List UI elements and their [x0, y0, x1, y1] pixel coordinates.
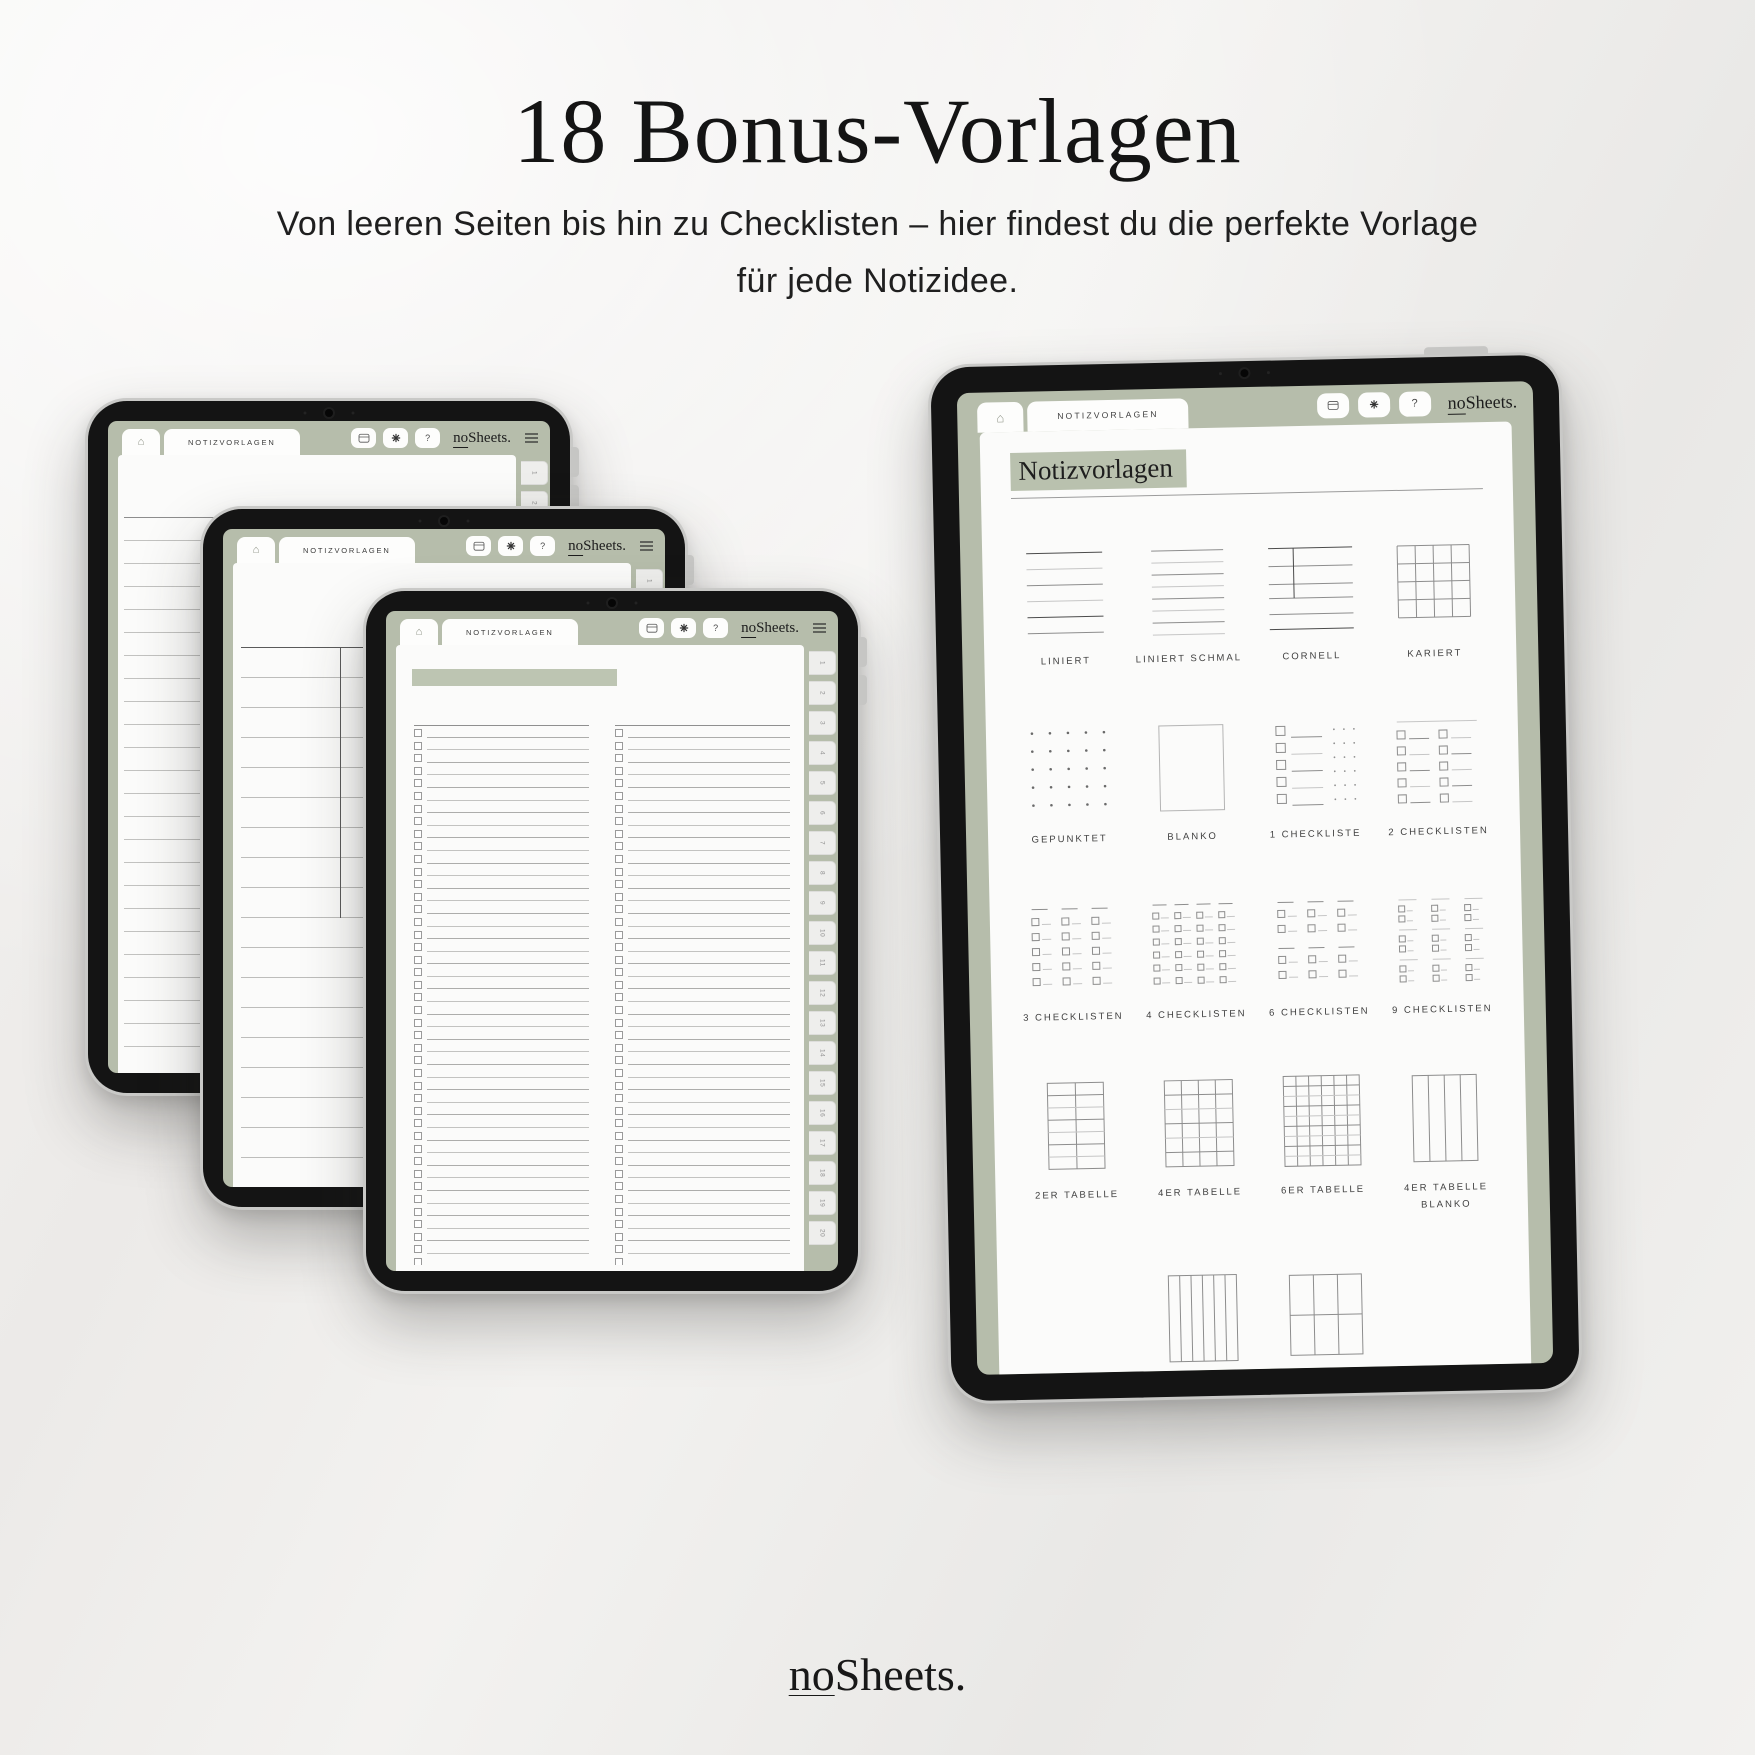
home-icon: ⌂ [996, 411, 1004, 424]
write-line [628, 787, 790, 788]
help-button[interactable]: ? [415, 428, 440, 448]
checkbox-icon [414, 905, 422, 913]
checkbox-icon [414, 1132, 422, 1140]
calendar-icon [473, 541, 485, 551]
checklist-row [414, 1116, 589, 1129]
checkbox-icon [615, 1233, 623, 1241]
help-icon: ? [425, 433, 430, 443]
checkbox-icon [414, 931, 422, 939]
tablet-toolbar: ?noSheets. [1316, 381, 1533, 426]
page-tab-number: 1 [531, 471, 538, 475]
checkbox-icon [414, 1220, 422, 1228]
checklist-row [414, 1129, 589, 1142]
write-line [628, 900, 790, 901]
checklist-row [615, 902, 790, 915]
checklist-row [414, 827, 589, 840]
page-tab[interactable]: 20 [809, 1221, 836, 1245]
tablet-toolbar: ?noSheets. [639, 611, 838, 645]
checklist-row [615, 1016, 790, 1029]
checklist-row [615, 1205, 790, 1218]
write-line [427, 1165, 589, 1166]
checkbox-icon [615, 1044, 623, 1052]
checkbox-icon [615, 767, 623, 775]
page-tab-number: 9 [819, 901, 826, 905]
checklist-row [414, 1179, 589, 1192]
hamburger-icon[interactable] [640, 541, 653, 551]
checklist-row [615, 739, 790, 752]
checkbox-icon [414, 993, 422, 1001]
checkbox-icon [414, 805, 422, 813]
checklist-row [615, 1104, 790, 1117]
checkbox-icon [414, 1119, 422, 1127]
page-tab-number: 2 [531, 501, 538, 505]
checklist-row [414, 1028, 589, 1041]
page-tab[interactable]: 13 [809, 1011, 836, 1035]
write-line [427, 1114, 589, 1115]
checkbox-icon [615, 779, 623, 787]
cornell-thumbnail [1259, 538, 1361, 637]
checkbox-icon [615, 830, 623, 838]
tab-notizvorlagen[interactable]: NOTIZVORLAGEN [164, 429, 300, 455]
page-tab[interactable]: 14 [809, 1041, 836, 1065]
calendar-icon [358, 433, 370, 443]
tab-label: NOTIZVORLAGEN [466, 628, 554, 637]
write-line [628, 863, 790, 864]
checkbox-icon [414, 943, 422, 951]
tab-notizvorlagen[interactable]: NOTIZVORLAGEN [442, 619, 578, 645]
write-line [427, 762, 589, 763]
checkbox-icon [414, 792, 422, 800]
page-tab-strip: 1234567891011121314151617181920 [809, 651, 836, 1267]
help-icon: ? [1411, 397, 1417, 409]
write-line [628, 850, 790, 851]
write-line [628, 888, 790, 889]
template-item-cornell[interactable]: CORNELL [1252, 538, 1370, 667]
checklist-row [615, 852, 790, 865]
template-item-dotted[interactable]: GEPUNKTET [1010, 721, 1128, 850]
page-tab-number: 6 [819, 811, 826, 815]
page-tab[interactable]: 1 [521, 461, 548, 485]
checklist-columns [414, 725, 790, 1265]
checkbox-icon [615, 729, 623, 737]
hamburger-icon[interactable] [525, 433, 538, 443]
checkbox-icon [615, 981, 623, 989]
checklist-row [414, 1066, 589, 1079]
template-label: KARIERT [1407, 646, 1462, 663]
home-icon: ⌂ [416, 627, 423, 638]
write-line [427, 1152, 589, 1153]
checkbox-icon [414, 1208, 422, 1216]
settings-icon [1369, 399, 1379, 409]
checklist-row [615, 1053, 790, 1066]
checklist-row [414, 990, 589, 1003]
checkbox-icon [414, 1069, 422, 1077]
checkbox-icon [414, 779, 422, 787]
page-tab-number: 13 [819, 1019, 826, 1027]
write-line [427, 900, 589, 901]
checklist-row [414, 877, 589, 890]
checklist-row [414, 1192, 589, 1205]
checkbox-icon [414, 1258, 422, 1265]
checklist-row [414, 839, 589, 852]
checklist-row [414, 789, 589, 802]
page-tab-number: 4 [819, 751, 826, 755]
write-line [427, 1077, 589, 1078]
checklist-row [414, 1167, 589, 1180]
template-item-table-6-blank[interactable]: 6ER TABELLE BLANKO [1144, 1269, 1262, 1375]
checklist-row [615, 1255, 790, 1265]
page-tab[interactable]: 12 [809, 981, 836, 1005]
page-tab-number: 19 [819, 1199, 826, 1207]
nosheets-logo: noSheets. [568, 538, 626, 555]
write-line [628, 1240, 790, 1241]
tablet-screen: ⌂ NOTIZVORLAGEN ?noSheets. Notizvorlagen… [957, 381, 1553, 1375]
checkbox-icon [615, 1107, 623, 1115]
checklist-row [414, 814, 589, 827]
tab-label: NOTIZVORLAGEN [188, 438, 276, 447]
nosheets-logo: noSheets. [1447, 391, 1517, 413]
template-label: 3 CHECKLISTEN [1023, 1009, 1124, 1027]
logo-prefix: no [789, 1649, 835, 1700]
checkbox-icon [615, 754, 623, 762]
camera-icon [1240, 369, 1248, 377]
home-tab[interactable]: ⌂ [237, 537, 275, 563]
checklist-row [615, 990, 790, 1003]
template-label: LINIERT SCHMAL [1136, 650, 1243, 668]
page-subtitle-line1: Von leeren Seiten bis hin zu Checklisten… [0, 205, 1755, 244]
page-tab[interactable]: 8 [809, 861, 836, 885]
write-line [628, 812, 790, 813]
template-gallery-page: Notizvorlagen LINIERTLINIERT SCHMALCORNE… [980, 422, 1532, 1375]
tab-label: NOTIZVORLAGEN [303, 546, 391, 555]
checklist-row [615, 827, 790, 840]
template-item-checklist-4[interactable]: 4 CHECKLISTEN [1136, 896, 1254, 1025]
template-item-table-4[interactable]: 4ER TABELLE [1140, 1074, 1258, 1219]
write-line [628, 1190, 790, 1191]
checklist-row [414, 953, 589, 966]
checklist-row [615, 802, 790, 815]
checklist-row [615, 1217, 790, 1230]
title-highlight-bar [412, 669, 617, 686]
tab-notizvorlagen[interactable]: NOTIZVORLAGEN [279, 537, 415, 563]
checkbox-icon [615, 893, 623, 901]
page-subtitle-line2: für jede Notizidee. [0, 262, 1755, 301]
template-item-blank[interactable]: BLANKO [1133, 718, 1251, 847]
checklist-row [615, 776, 790, 789]
write-line [427, 1140, 589, 1141]
template-item-checklist-3[interactable]: 3 CHECKLISTEN [1013, 899, 1131, 1028]
checklist-2-thumbnail [1386, 713, 1488, 812]
page-tab-number: 12 [819, 989, 826, 997]
template-label: LINIERT [1041, 653, 1092, 670]
nosheets-logo: noSheets. [0, 1648, 1755, 1701]
write-line [628, 1152, 790, 1153]
nosheets-logo: noSheets. [741, 620, 799, 637]
checkbox-icon [615, 993, 623, 1001]
checkbox-icon [414, 1233, 422, 1241]
calendar-button[interactable] [466, 536, 491, 556]
page-tab-number: 20 [819, 1229, 826, 1237]
checklist-row [615, 1142, 790, 1155]
checkbox-icon [414, 981, 422, 989]
write-line [628, 800, 790, 801]
checkbox-icon [615, 968, 623, 976]
write-line [628, 1026, 790, 1027]
checkbox-icon [414, 1094, 422, 1102]
nosheets-logo: noSheets. [453, 430, 511, 447]
checkbox-icon [615, 943, 623, 951]
template-item-checklist-2[interactable]: 2 CHECKLISTEN [1379, 713, 1497, 842]
hamburger-icon[interactable] [813, 623, 826, 633]
checkbox-icon [615, 842, 623, 850]
checklist-row [414, 1217, 589, 1230]
home-tab[interactable]: ⌂ [400, 619, 438, 645]
page-tab[interactable]: 9 [809, 891, 836, 915]
write-line [628, 1014, 790, 1015]
write-line [427, 1190, 589, 1191]
checkbox-icon [615, 1170, 623, 1178]
checkbox-icon [414, 842, 422, 850]
home-tab[interactable]: ⌂ [122, 429, 160, 455]
page-tab-number: 5 [819, 781, 826, 785]
write-line [427, 837, 589, 838]
checklist-row [615, 1079, 790, 1092]
template-item-lined[interactable]: LINIERT [1006, 543, 1124, 672]
checklist-row [414, 776, 589, 789]
page-title-highlighted: Notizvorlagen [1010, 449, 1187, 491]
checklist-row [615, 978, 790, 991]
checklist-row [615, 764, 790, 777]
template-label: 1 CHECKLISTE [1270, 826, 1362, 844]
checkbox-icon [414, 742, 422, 750]
write-line [628, 1177, 790, 1178]
checkbox-icon [414, 1044, 422, 1052]
write-line [427, 863, 589, 864]
checklist-row [615, 1230, 790, 1243]
checkbox-icon [414, 830, 422, 838]
write-line [427, 800, 589, 801]
squared-thumbnail [1382, 535, 1484, 634]
page-tab[interactable]: 7 [809, 831, 836, 855]
checklist-row [615, 915, 790, 928]
checklist-1-thumbnail [1263, 716, 1365, 815]
template-item-table-4-blank[interactable]: 4ER TABELLE BLANKO [1386, 1069, 1504, 1214]
checklist-row [414, 865, 589, 878]
settings-icon [391, 433, 401, 443]
calendar-button[interactable] [1316, 392, 1349, 418]
checkbox-icon [615, 1195, 623, 1203]
checkbox-icon [615, 1069, 623, 1077]
template-item-checklist-6[interactable]: 6 CHECKLISTEN [1259, 894, 1377, 1023]
table-4-thumbnail [1148, 1075, 1250, 1174]
page-tab[interactable]: 5 [809, 771, 836, 795]
template-label: BLANKO [1167, 829, 1218, 846]
checklist-row [414, 1091, 589, 1104]
checklist-row [414, 978, 589, 991]
checklist-row [414, 764, 589, 777]
write-line [628, 951, 790, 952]
dotted-thumbnail [1017, 721, 1119, 820]
settings-button[interactable] [671, 618, 696, 638]
checklist-row [615, 865, 790, 878]
help-button[interactable]: ? [1398, 391, 1431, 417]
page-tab[interactable]: 2 [809, 681, 836, 705]
checklist-row [414, 915, 589, 928]
write-line [427, 1240, 589, 1241]
page-tab-number: 14 [819, 1049, 826, 1057]
checklist-row [615, 839, 790, 852]
write-line [628, 1253, 790, 1254]
template-item-lined-narrow[interactable]: LINIERT SCHMAL [1129, 540, 1247, 669]
template-item-table-6[interactable]: 6ER TABELLE [1263, 1072, 1381, 1217]
checkbox-icon [414, 767, 422, 775]
write-line [628, 762, 790, 763]
template-label: CORNELL [1282, 648, 1341, 665]
lined-thumbnail [1013, 543, 1115, 642]
write-line [427, 1102, 589, 1103]
write-line [628, 1127, 790, 1128]
camera-icon [325, 409, 333, 417]
write-line [628, 1089, 790, 1090]
checklist-row [615, 1154, 790, 1167]
home-icon: ⌂ [138, 437, 145, 448]
page-tab[interactable]: 16 [809, 1101, 836, 1125]
tab-notizvorlagen[interactable]: NOTIZVORLAGEN [1027, 398, 1189, 431]
checkbox-icon [615, 1082, 623, 1090]
write-line [628, 1228, 790, 1229]
tablet-mockup-gallery: ⌂ NOTIZVORLAGEN ?noSheets. Notizvorlagen… [927, 351, 1583, 1404]
checklist-row [414, 890, 589, 903]
settings-button[interactable] [498, 536, 523, 556]
page-tab[interactable]: 4 [809, 741, 836, 765]
checkbox-icon [615, 817, 623, 825]
checklist-row [615, 928, 790, 941]
template-item-checklist-1[interactable]: 1 CHECKLISTE [1256, 716, 1374, 845]
template-label: GEPUNKTET [1031, 831, 1107, 849]
page-tab[interactable]: 6 [809, 801, 836, 825]
write-line [427, 875, 589, 876]
checkbox-icon [615, 1245, 623, 1253]
checklist-row [414, 1154, 589, 1167]
page-tab[interactable]: 11 [809, 951, 836, 975]
page-tab[interactable]: 19 [809, 1191, 836, 1215]
checkbox-icon [615, 805, 623, 813]
page-tab-number: 3 [819, 721, 826, 725]
settings-button[interactable] [1357, 392, 1390, 418]
settings-button[interactable] [383, 428, 408, 448]
write-line [628, 1114, 790, 1115]
checkbox-icon [414, 1056, 422, 1064]
template-label: 2ER TABELLE [1035, 1187, 1119, 1205]
page-tab[interactable]: 17 [809, 1131, 836, 1155]
page-tab[interactable]: 18 [809, 1161, 836, 1185]
checkbox-icon [414, 880, 422, 888]
checkbox-icon [615, 1056, 623, 1064]
checkbox-icon [615, 1157, 623, 1165]
write-line [628, 825, 790, 826]
checkbox-icon [615, 792, 623, 800]
checklist-row [414, 1205, 589, 1218]
checkbox-icon [414, 1182, 422, 1190]
table-6-blank-thumbnail [1152, 1269, 1254, 1368]
note-page-checklist [396, 645, 804, 1271]
write-line [427, 774, 589, 775]
tab-bar: ⌂ NOTIZVORLAGEN ?noSheets. [386, 611, 838, 645]
help-button[interactable]: ? [703, 618, 728, 638]
checkbox-icon [615, 855, 623, 863]
calendar-button[interactable] [351, 428, 376, 448]
tab-label: NOTIZVORLAGEN [1057, 409, 1159, 421]
checklist-row [615, 1066, 790, 1079]
home-icon: ⌂ [253, 545, 260, 556]
checkbox-icon [615, 880, 623, 888]
write-line [427, 1228, 589, 1229]
write-line [628, 1077, 790, 1078]
checklist-row [414, 1016, 589, 1029]
checkbox-icon [414, 729, 422, 737]
page-tab[interactable]: 3 [809, 711, 836, 735]
help-button[interactable]: ? [530, 536, 555, 556]
page-tab-number: 15 [819, 1079, 826, 1087]
write-line [628, 737, 790, 738]
checkbox-icon [414, 1019, 422, 1027]
write-line [427, 1089, 589, 1090]
page-title: 18 Bonus-Vorlagen [0, 78, 1755, 184]
checklist-row [414, 940, 589, 953]
home-tab[interactable]: ⌂ [977, 402, 1024, 433]
write-line [427, 951, 589, 952]
checklist-row [414, 726, 589, 739]
template-item-squared[interactable]: KARIERT [1375, 535, 1493, 664]
page-tab[interactable]: 1 [809, 651, 836, 675]
write-line [427, 1215, 589, 1216]
checklist-row [615, 1003, 790, 1016]
write-line [628, 1165, 790, 1166]
checklist-column [615, 725, 790, 1265]
checkbox-icon [615, 1119, 623, 1127]
write-line [427, 1064, 589, 1065]
checklist-row [615, 726, 790, 739]
template-item-table-2[interactable]: 2ER TABELLE [1017, 1077, 1135, 1222]
checklist-row [414, 1041, 589, 1054]
checklist-row [615, 1028, 790, 1041]
checkbox-icon [414, 918, 422, 926]
table-6-thumbnail [1271, 1072, 1373, 1171]
checklist-row [414, 739, 589, 752]
checkbox-icon [615, 905, 623, 913]
camera-icon [440, 517, 448, 525]
tab-bar: ⌂ NOTIZVORLAGEN ?noSheets. [223, 529, 665, 563]
page-tab-number: 8 [819, 871, 826, 875]
calendar-button[interactable] [639, 618, 664, 638]
checklist-row [414, 1079, 589, 1092]
page-tab-number: 10 [819, 929, 826, 937]
template-item-raster-blank[interactable]: RASTER BLANKO [1267, 1266, 1385, 1375]
write-line [427, 913, 589, 914]
checklist-row [615, 877, 790, 890]
write-line [427, 1026, 589, 1027]
write-line [427, 812, 589, 813]
write-line [628, 926, 790, 927]
template-item-checklist-9[interactable]: 9 CHECKLISTEN [1382, 891, 1500, 1020]
write-line [427, 938, 589, 939]
checkbox-icon [414, 968, 422, 976]
write-line [427, 1253, 589, 1254]
checkbox-icon [414, 1195, 422, 1203]
page-tab[interactable]: 15 [809, 1071, 836, 1095]
page-tab[interactable]: 10 [809, 921, 836, 945]
cornell-divider [340, 648, 341, 918]
